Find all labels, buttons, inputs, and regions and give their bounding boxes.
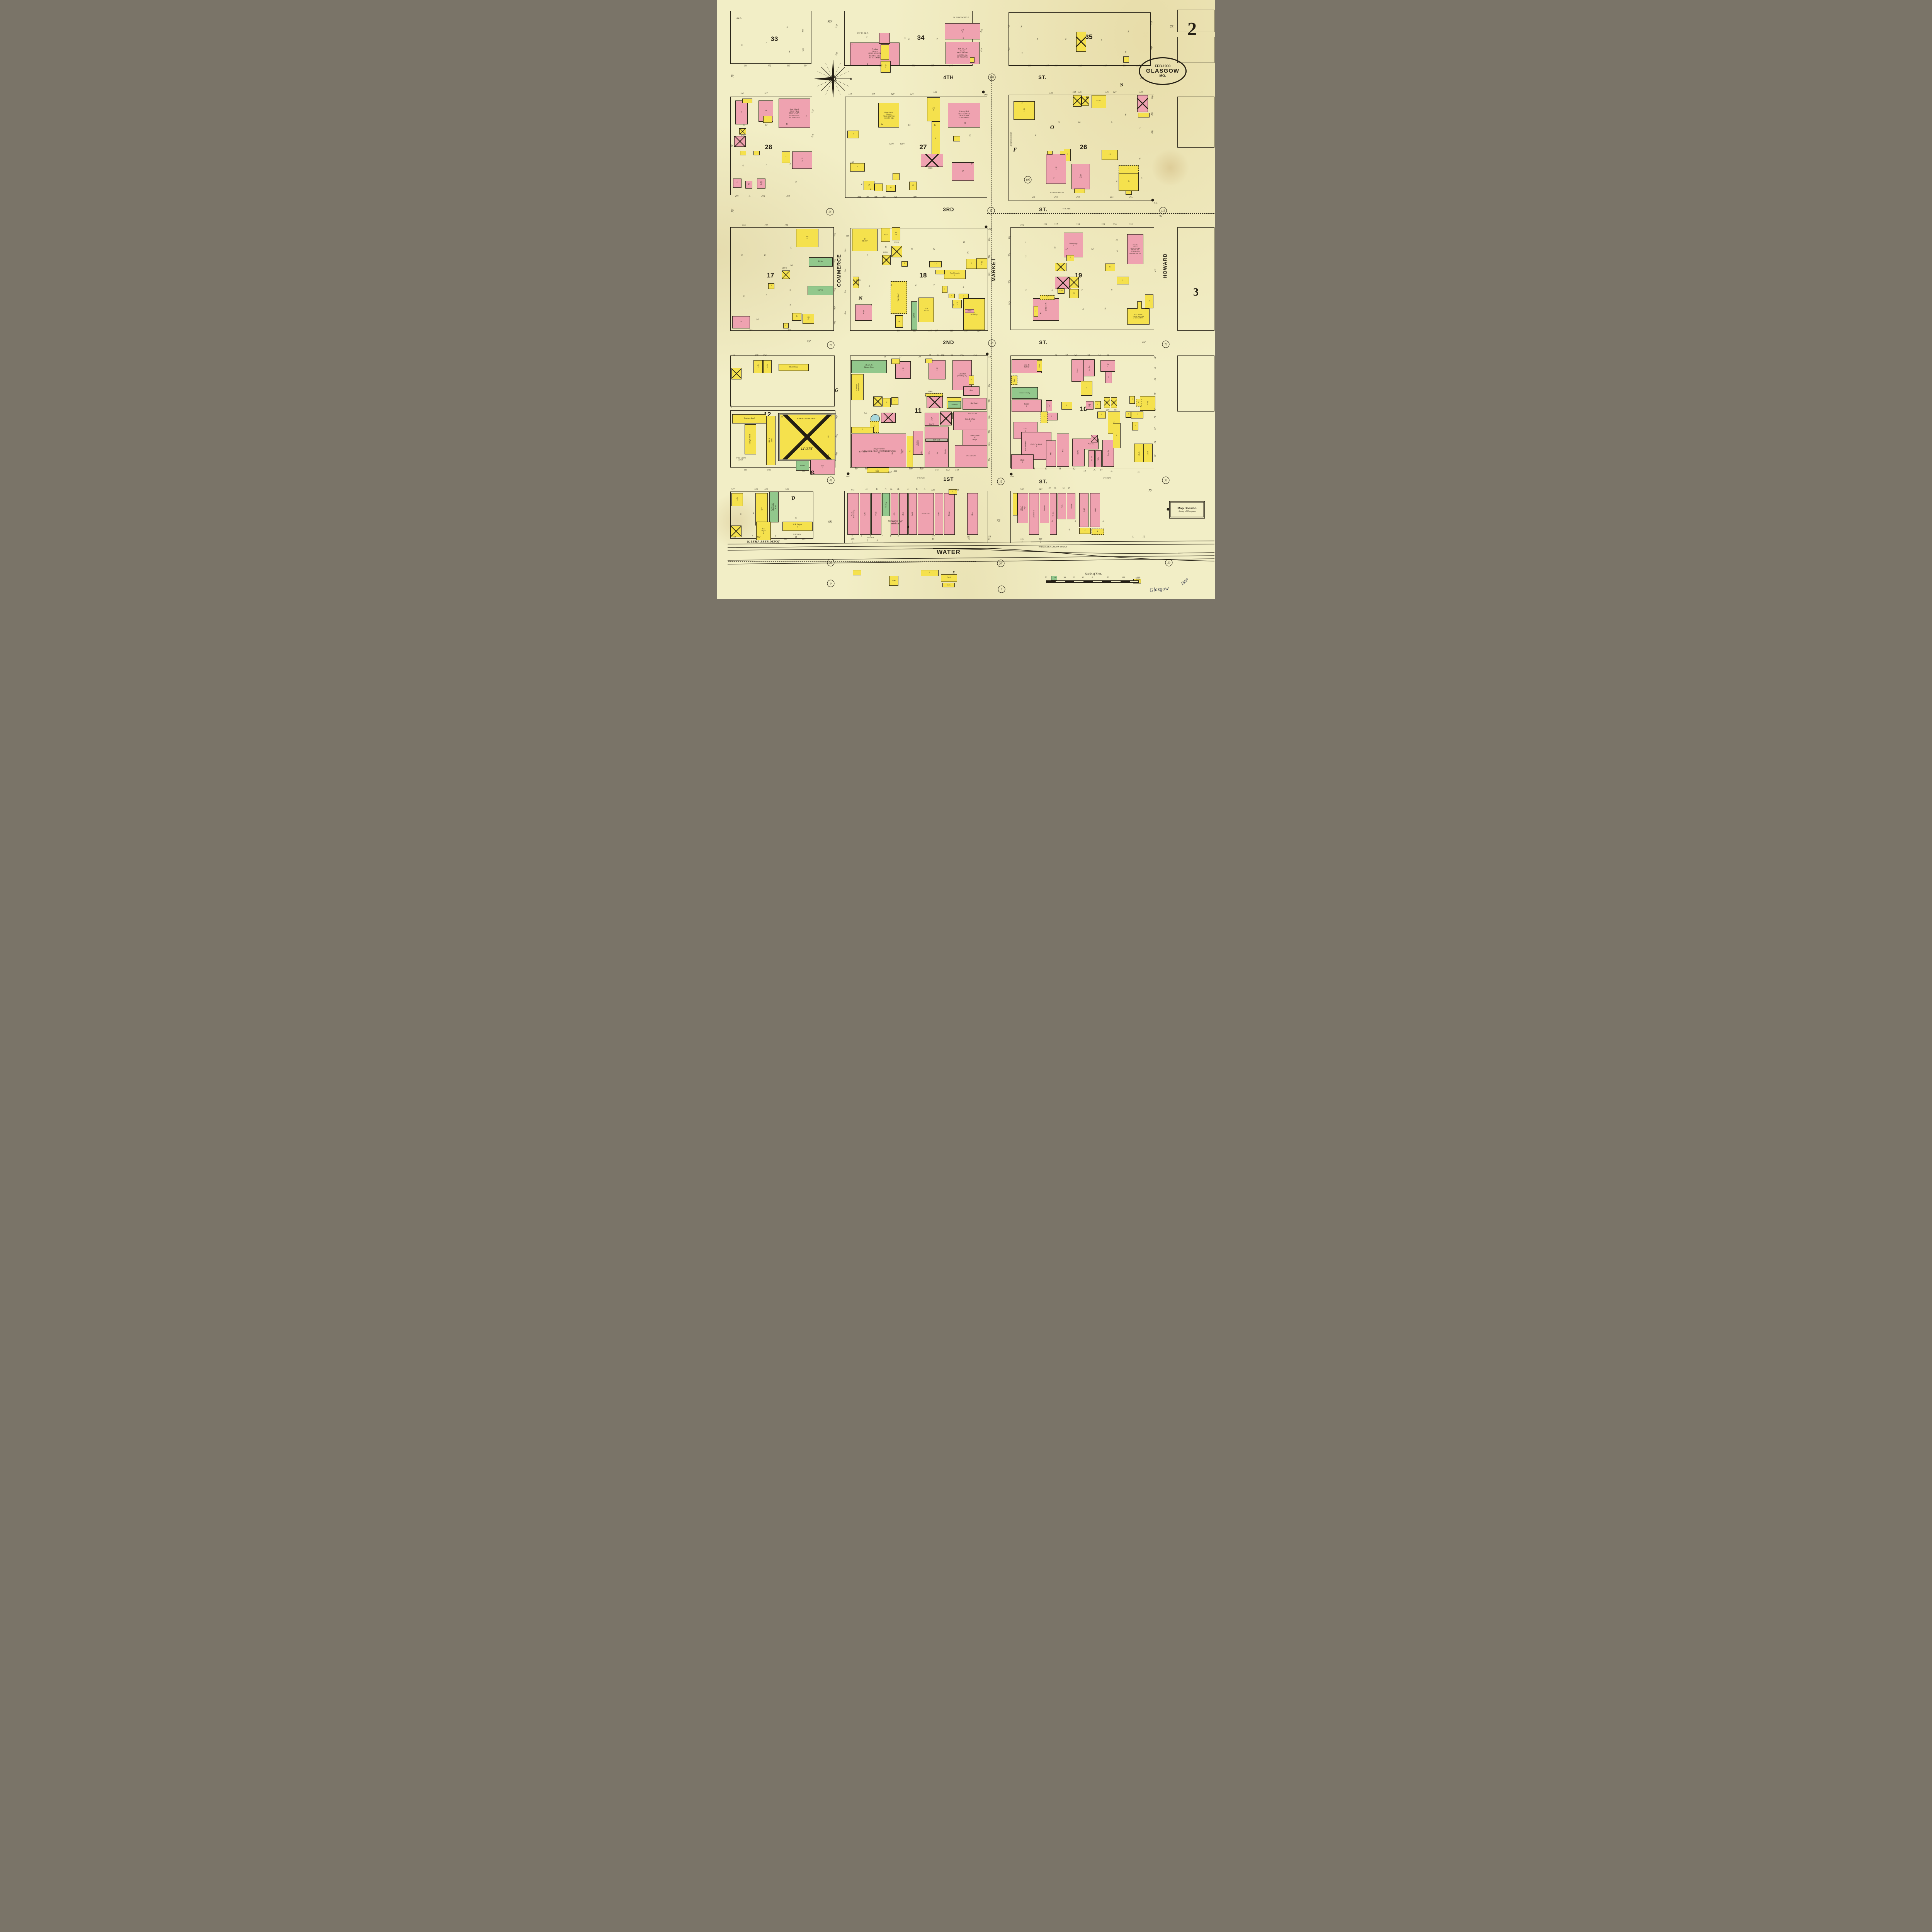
map-text: 216	[742, 224, 746, 227]
map-text: S a l o o n	[859, 451, 866, 453]
map-text: 13	[1065, 248, 1068, 251]
building-footprint: Rest	[899, 493, 908, 535]
map-text: 23	[1107, 355, 1109, 357]
building-label: IRON CLAD	[933, 439, 940, 441]
map-text: 19	[1154, 393, 1157, 396]
building-footprint: Drugs	[944, 493, 955, 535]
building-label: Vac. 1ST	[1091, 456, 1092, 461]
map-text: 210½	[928, 167, 932, 170]
map-text: 11	[963, 241, 965, 244]
building-footprint: Smo.Ho.	[1058, 288, 1065, 294]
building-label: 1	[1135, 425, 1136, 427]
street-label: 3RD	[943, 207, 954, 213]
building-footprint: P.O.	[1057, 434, 1069, 467]
building-footprint: Carp'r	[911, 301, 917, 330]
map-text: 228	[1077, 224, 1080, 226]
building-label: City Hall (Printing 2ᴰ)	[957, 373, 967, 378]
map-text: 307	[833, 306, 837, 310]
map-text: 6	[1139, 158, 1141, 161]
map-text: 120½	[889, 143, 893, 145]
map-text: 7	[882, 535, 883, 538]
building-footprint: D 2	[952, 300, 962, 308]
map-text: 14	[885, 246, 887, 249]
map-text: 8	[753, 513, 754, 515]
map-text: 103	[787, 65, 791, 68]
map-text: D.H.	[984, 94, 988, 96]
building-footprint: 1	[847, 131, 859, 138]
scale-tick: 40	[1054, 577, 1056, 579]
building-footprint: 1	[901, 261, 908, 267]
utility-circle: 25	[827, 559, 835, 566]
scale-tick: 50	[1045, 577, 1047, 579]
sanborn-map-sheet: 333435282726171819121110345 Presbyn Chur…	[717, 0, 1215, 599]
map-text: 75'	[1142, 341, 1146, 344]
map-text: 128	[941, 355, 944, 357]
building-footprint: 1	[850, 163, 865, 172]
building-footprint: 1	[949, 294, 955, 298]
building-footprint: Furn'e 2	[1012, 400, 1042, 412]
building-footprint: Impl. Storage Harness Shop Bl.Sm.	[769, 492, 779, 522]
building-footprint: W. Rm.	[1050, 493, 1057, 535]
map-text: 6	[1103, 520, 1104, 523]
building-label: D	[740, 321, 742, 323]
map-text: BK.D.	[736, 17, 742, 20]
building-label: 2	[910, 451, 910, 452]
building-footprint: Ice Ho.	[1084, 359, 1095, 376]
map-text: 1	[1026, 241, 1027, 244]
map-text: M.	[1049, 487, 1051, 490]
map-text: 8	[1105, 308, 1106, 311]
building-label: Shingle Shed	[749, 434, 752, 444]
map-text: 4	[867, 63, 868, 66]
map-text: 9	[775, 536, 776, 538]
map-text: Gro.	[921, 451, 923, 454]
map-text: J.	[907, 488, 909, 491]
building-label: D 2	[1055, 167, 1056, 171]
building-label: D	[890, 187, 891, 189]
map-text: 10	[969, 135, 971, 138]
map-text: 122	[934, 91, 937, 94]
scale-tick: 10	[1082, 577, 1084, 579]
map-text: 24	[1098, 355, 1100, 357]
map-text: 9	[1034, 468, 1035, 471]
utility-circle: 76	[1162, 341, 1170, 348]
building-label: Ice Ho.	[1088, 366, 1090, 371]
street-label: 4TH	[943, 75, 954, 80]
map-text: 114 12	[988, 536, 991, 541]
building-footprint: 2	[1055, 277, 1071, 289]
map-text: 541	[956, 489, 959, 492]
map-text: 9	[898, 535, 899, 538]
building-footprint: 2	[907, 436, 913, 468]
map-text: 127	[1113, 91, 1117, 94]
map-text: 230	[1113, 224, 1117, 226]
building-label: D	[741, 111, 742, 113]
building-footprint: Hall 2ᴰ Barber B. Drugs	[1017, 493, 1028, 523]
map-text: G.	[890, 488, 893, 491]
building-footprint: Carriage Repository	[851, 374, 864, 400]
building-label: 1	[946, 417, 946, 419]
building-footprint: 1½ D	[927, 97, 940, 121]
block-number: 28	[765, 143, 772, 151]
building-footprint: City Hall (Printing 2ᴰ)	[952, 360, 972, 390]
scale-tick: 0	[1092, 577, 1093, 579]
map-text: 2	[870, 188, 871, 191]
building-label: Presbyn Church HEAT: STOVES. LIGHTS: OIL…	[868, 49, 881, 60]
building-footprint: Smo Ho.	[1086, 401, 1094, 410]
building-footprint: 1	[782, 151, 790, 163]
map-text: 113	[1104, 65, 1107, 68]
building-label: 1	[1036, 310, 1036, 312]
map-text: 326½	[856, 279, 861, 282]
building-label: Photo Gal.	[1088, 443, 1095, 445]
building-label: Parsonage 1	[1070, 243, 1078, 247]
map-text: 512	[946, 469, 950, 472]
building-footprint: 1½	[1069, 277, 1079, 288]
utility-circle: 43	[827, 477, 835, 484]
map-text: 76'	[1158, 215, 1162, 218]
map-text: F	[1013, 147, 1017, 153]
building-label: Carp'r	[800, 464, 805, 466]
block-outline	[1177, 97, 1214, 148]
building-label: D 1	[936, 368, 937, 372]
building-label: 1	[1094, 437, 1095, 439]
map-text: 5	[1037, 39, 1038, 41]
building-footprint: B&S	[1090, 493, 1100, 527]
building-footprint: Lunch Rm B.	[1029, 493, 1039, 535]
map-text: 11	[964, 122, 966, 125]
building-footprint: Bapt. Church BK.50 FR.40 HEAT: FURN. LIG…	[779, 99, 810, 128]
hydrant-dot	[1010, 473, 1013, 476]
building-footprint: 1	[969, 376, 974, 385]
map-text: 116	[740, 93, 744, 95]
building-label: Hall 2ᴰ Barber B. Drugs	[1020, 505, 1026, 511]
map-text: N	[859, 296, 862, 301]
building-label: D 1	[736, 498, 738, 502]
building-footprint: 1 1	[1069, 289, 1079, 298]
map-text: 2	[867, 540, 868, 543]
map-text: 205	[866, 196, 870, 199]
map-text: 15'	[1154, 408, 1157, 412]
map-text: 10	[1045, 468, 1047, 471]
building-label: 2	[934, 401, 935, 403]
map-text: 503	[802, 470, 806, 473]
building-footprint: Hardware	[963, 398, 986, 410]
building-label: 1 1	[1109, 266, 1111, 268]
building-footprint: 1½	[873, 396, 883, 406]
building-label: Gro.	[971, 512, 973, 516]
map-text: 7	[934, 285, 935, 287]
map-text: 15	[1154, 454, 1157, 457]
map-text: 6" W.PIPE	[1103, 478, 1111, 480]
building-footprint: D.G. & Gro.	[955, 445, 987, 468]
building-label: Lunch Rm B.	[1033, 510, 1035, 518]
building-label: D	[736, 182, 738, 184]
building-label: 1 1	[934, 263, 937, 265]
map-text: 24	[937, 355, 939, 357]
building-footprint: D	[1119, 173, 1139, 191]
building-label: 1	[1066, 405, 1067, 406]
building-label: Rest	[902, 512, 904, 515]
building-label: 1	[952, 491, 953, 493]
map-text: 10	[790, 265, 793, 267]
block-outline	[1177, 227, 1214, 331]
building-footprint	[881, 44, 889, 60]
map-text: 14	[1054, 247, 1056, 250]
utility-circle: 20	[1165, 559, 1173, 566]
map-text: 3	[1021, 26, 1022, 29]
building-label: Tin Shop	[951, 403, 957, 405]
building-label: Smo.Ho.	[1059, 290, 1063, 292]
map-text: 109	[1028, 65, 1032, 68]
building-footprint: 1	[1046, 413, 1058, 420]
map-text: 116 2	[1039, 538, 1043, 543]
map-text: E.	[876, 488, 878, 491]
map-text: 325	[844, 290, 847, 294]
building-label: Beer Depot 2	[761, 528, 765, 534]
building-label: Furn'e, Undertaking	[851, 510, 855, 518]
building-label: 2 2 D	[961, 29, 964, 34]
map-text: 513	[956, 469, 959, 472]
building-label: Drugs.	[875, 511, 877, 516]
map-text: 7	[937, 39, 938, 41]
sheet-number: 2	[1187, 19, 1197, 40]
map-text: 530	[786, 488, 789, 491]
map-text: 2	[867, 255, 868, 257]
map-text: 14	[1100, 469, 1102, 472]
map-text: 28	[884, 356, 886, 359]
map-text: W I N D O W S.	[968, 413, 977, 414]
map-text: 203	[787, 195, 790, 198]
building-footprint: Gro.	[1058, 493, 1066, 519]
building-label: Gro.	[1061, 505, 1063, 508]
building-footprint: 1	[1137, 95, 1148, 112]
building-label: 1	[904, 263, 905, 265]
building-label: 1½	[1080, 41, 1082, 43]
street-label: ST.	[1038, 75, 1047, 80]
building-footprint: Lumb	[1011, 376, 1017, 385]
building-footprint: OVEN	[965, 309, 974, 313]
building-footprint: 2	[1092, 529, 1104, 535]
map-text: 16'	[730, 405, 733, 408]
hydrant-dot	[985, 226, 988, 228]
map-text: 3	[877, 540, 878, 543]
map-text: 2	[1035, 134, 1036, 137]
map-text: 13	[1083, 470, 1086, 473]
map-text: 8	[1125, 51, 1126, 54]
building-footprint: D 1	[1100, 360, 1115, 372]
building-footprint: Drugs.	[871, 493, 881, 535]
map-text: 306	[833, 321, 837, 325]
building-footprint: D	[909, 182, 917, 190]
map-text: 6	[1065, 39, 1066, 41]
building-footprint: Mill'y	[1072, 439, 1085, 466]
building-label: Drugs.	[1070, 504, 1072, 509]
map-text: 130' TO BK.D.	[857, 32, 869, 35]
building-label: 1	[951, 295, 952, 297]
building-label: D	[748, 184, 749, 185]
map-text: Sal.	[937, 452, 939, 454]
building-label: 1½ D	[806, 236, 808, 240]
building-footprint: 1	[1041, 412, 1048, 423]
map-text: 6	[1083, 309, 1084, 311]
building-footprint: 1 18	[755, 493, 768, 526]
map-text: 309½	[782, 267, 787, 269]
building-footprint: Bank 2	[1011, 454, 1034, 469]
building-footprint: 1	[1117, 277, 1129, 284]
building-footprint: 1½	[1111, 397, 1117, 408]
building-label: D.G. Clo. B&S. 5	[1031, 444, 1042, 448]
building-label: Carriage Repository	[855, 383, 859, 391]
building-footprint: 1½	[1076, 32, 1086, 52]
building-footprint: 1½	[1055, 263, 1066, 271]
building-footprint: Vac. 1ST	[1088, 450, 1095, 467]
map-text: 324	[844, 311, 847, 315]
building-footprint: Horse Shed	[779, 364, 809, 371]
map-text: 129	[960, 355, 964, 357]
building-label: P.O.	[1062, 449, 1064, 452]
building-label: Vac. Shed	[898, 294, 900, 301]
map-text: K.	[916, 488, 918, 491]
map-text: 11	[1058, 122, 1060, 124]
building-footprint: Rest.	[963, 386, 980, 396]
building-footprint: D.G.& Clo.	[918, 493, 934, 535]
map-text: 25	[929, 355, 931, 357]
building-footprint: 1 1	[1105, 264, 1115, 271]
map-text: 12	[1143, 536, 1145, 539]
map-text: F.	[885, 488, 886, 491]
map-text: 225	[1020, 224, 1024, 227]
building-label: Carriage Ho.	[1048, 403, 1051, 408]
map-text: 12	[765, 124, 767, 127]
map-text: 104	[802, 538, 806, 541]
building-footprint	[753, 151, 760, 155]
building-footprint	[734, 136, 746, 147]
map-text: 106	[912, 65, 915, 68]
map-text: N	[1119, 82, 1124, 88]
building-footprint	[925, 359, 932, 363]
building-label: 1	[1047, 296, 1048, 298]
map-text: 226	[1044, 224, 1047, 226]
building-footprint	[1074, 189, 1085, 193]
building-label: 2	[935, 138, 936, 139]
map-text: W	[1085, 96, 1088, 100]
map-text: IRON COLUMNS.	[1025, 440, 1027, 451]
building-footprint: Carriage Ho.	[1046, 400, 1052, 411]
building-footprint: D 2	[855, 304, 872, 321]
building-label: Ice Ho.	[931, 417, 933, 421]
building-footprint	[874, 184, 883, 191]
building-footprint: D 2	[1046, 154, 1066, 184]
building-label: 1 1	[1109, 154, 1111, 156]
map-text: 75'	[731, 74, 735, 78]
building-label: 1	[786, 274, 786, 276]
building-footprint: 2	[1119, 165, 1139, 173]
building-footprint: Gro.	[967, 493, 978, 535]
building-label: 1	[963, 295, 964, 297]
building-footprint: 1 1	[1102, 150, 1118, 160]
map-text: 8	[796, 181, 797, 184]
map-text: 219½	[883, 252, 888, 254]
building-footprint: Gro.& China 2	[953, 412, 987, 430]
map-text: 9	[787, 27, 788, 29]
map-text: 6	[743, 165, 744, 168]
map-text: 414	[980, 48, 984, 52]
block-outline: 33	[730, 11, 811, 64]
building-footprint	[891, 359, 900, 364]
building-footprint: Shed	[881, 228, 890, 242]
building-label: 1½	[896, 250, 898, 252]
map-text: 5.	[749, 195, 751, 198]
building-footprint: 1	[1126, 412, 1131, 418]
map-text: 5	[1052, 289, 1053, 292]
map-text: 117	[935, 330, 938, 333]
building-label: Bank 2	[1020, 459, 1024, 464]
building-label: Germ. Luth. Church HEAT: STOVES LIGHTS: …	[883, 111, 895, 119]
building-label: Coal.	[947, 577, 951, 579]
building-label: 2 R.CL.	[886, 417, 891, 418]
building-label: 2	[1149, 300, 1150, 302]
building-footprint: D	[732, 316, 750, 328]
building-footprint: D	[735, 100, 748, 124]
map-text: 6	[740, 514, 742, 516]
building-footprint: B.&S.	[1079, 493, 1088, 527]
map-text: 126	[1105, 91, 1109, 94]
map-text: 5	[861, 535, 862, 538]
building-label: D 1	[767, 365, 768, 369]
building-label: Catholic Church HEAT:STOVES LIGHTS: OIL …	[1129, 244, 1141, 254]
building-label: 2	[932, 159, 932, 161]
map-text: 7	[752, 536, 753, 538]
utility-circle: 7	[998, 586, 1005, 593]
map-text: 110	[1046, 65, 1049, 68]
map-text: 12	[1073, 468, 1075, 471]
map-text: 13	[908, 124, 910, 127]
building-label: D 1	[1024, 109, 1025, 113]
building-footprint: Vac.	[1046, 440, 1056, 467]
building-label: 1	[853, 133, 854, 135]
map-text: 113 11	[967, 536, 971, 541]
building-footprint: 2 R.CL.	[881, 413, 896, 423]
dashed-pipe-line	[728, 561, 976, 562]
building-footprint	[853, 570, 861, 575]
map-text: 415	[980, 29, 984, 33]
map-text: A.	[1094, 469, 1095, 472]
map-text: 6	[870, 535, 871, 538]
building-label: D.G. & Gro.	[966, 455, 976, 457]
building-label: Hardware	[971, 403, 978, 405]
building-footprint: 1	[1081, 381, 1092, 396]
hydrant-dot	[986, 353, 989, 355]
street-label: COMMERCE	[836, 254, 842, 287]
building-footprint: 1	[921, 570, 939, 576]
map-text: 12	[1091, 248, 1094, 251]
building-label: 1	[1137, 414, 1138, 416]
building-label: R.C. School HEAT: STOVES 2 NO LIGHTS	[1133, 314, 1144, 320]
map-text: 212	[1054, 196, 1058, 199]
building-footprint	[740, 151, 746, 155]
map-text: 231	[1129, 224, 1133, 226]
map-text: 23	[951, 355, 953, 357]
block-outline	[1177, 37, 1214, 63]
building-footprint	[1013, 493, 1017, 515]
map-text: 112	[1078, 65, 1082, 68]
building-label: 1½ D	[932, 107, 935, 112]
map-text: 3	[1026, 289, 1027, 292]
map-text: 529	[765, 488, 768, 491]
building-label: 2	[1063, 282, 1063, 284]
building-label: 1	[895, 400, 895, 402]
